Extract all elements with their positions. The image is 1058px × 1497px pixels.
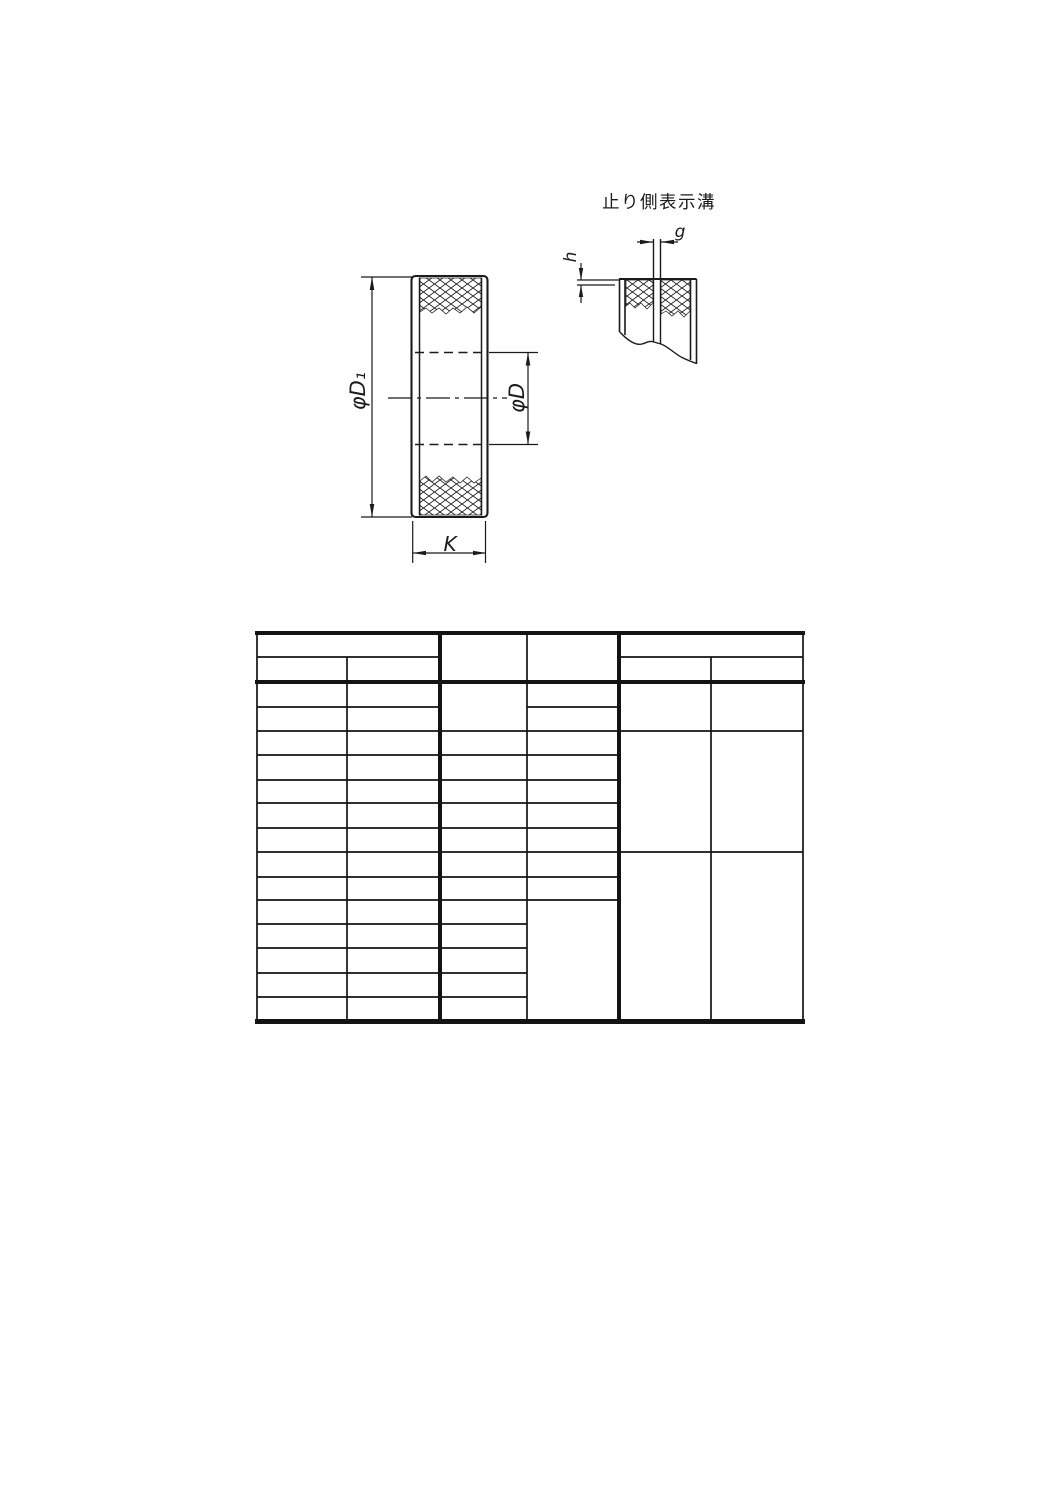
detail-right-edges: [691, 279, 697, 364]
knurl-band-bottom: [420, 476, 481, 515]
detail-left-edges: [620, 279, 626, 335]
groove-detail-view: 止り側表示溝 g h: [561, 193, 716, 364]
detail-knurl-left: [626, 280, 653, 309]
detail-knurl-right: [661, 280, 690, 317]
table-thin-horizontals: [257, 657, 803, 997]
groove-width-dimension: [637, 240, 678, 244]
gauge-width-label: K: [443, 532, 458, 556]
knurl-band-top: [420, 278, 481, 314]
document-page: φD₁ φD K 止り側表示溝: [0, 0, 1058, 1497]
dimension-table-grid: [255, 631, 805, 1023]
groove-caption: 止り側表示溝: [602, 193, 716, 213]
groove-depth-label: h: [561, 252, 581, 263]
ring-gauge-side-view: φD₁ φD K: [346, 276, 538, 563]
table-thin-verticals: [257, 632, 803, 1021]
bore-diameter-label: φD: [505, 383, 529, 413]
table-thick-verticals: [440, 631, 619, 1023]
technical-drawing-svg: φD₁ φD K 止り側表示溝: [0, 0, 1058, 1497]
groove-width-label: g: [675, 222, 686, 242]
groove-depth-dimension: [577, 263, 619, 303]
break-line: [619, 331, 697, 364]
groove-side-lines: [654, 239, 661, 344]
outer-diameter-label: φD₁: [346, 372, 370, 410]
